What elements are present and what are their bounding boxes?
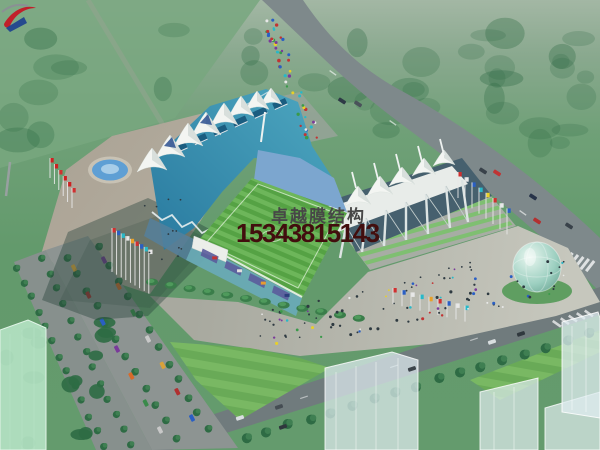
egg-highlight	[524, 248, 536, 266]
ghost-tower-1	[325, 352, 418, 450]
fountain-spray	[101, 164, 119, 174]
green-glass-building	[0, 320, 46, 450]
scene-svg	[0, 0, 600, 450]
ghost-tower-4	[562, 312, 600, 418]
stadium-aerial-rendering: 卓越膜结构 15343815143	[0, 0, 600, 450]
glass-egg-pavilion	[513, 242, 561, 292]
